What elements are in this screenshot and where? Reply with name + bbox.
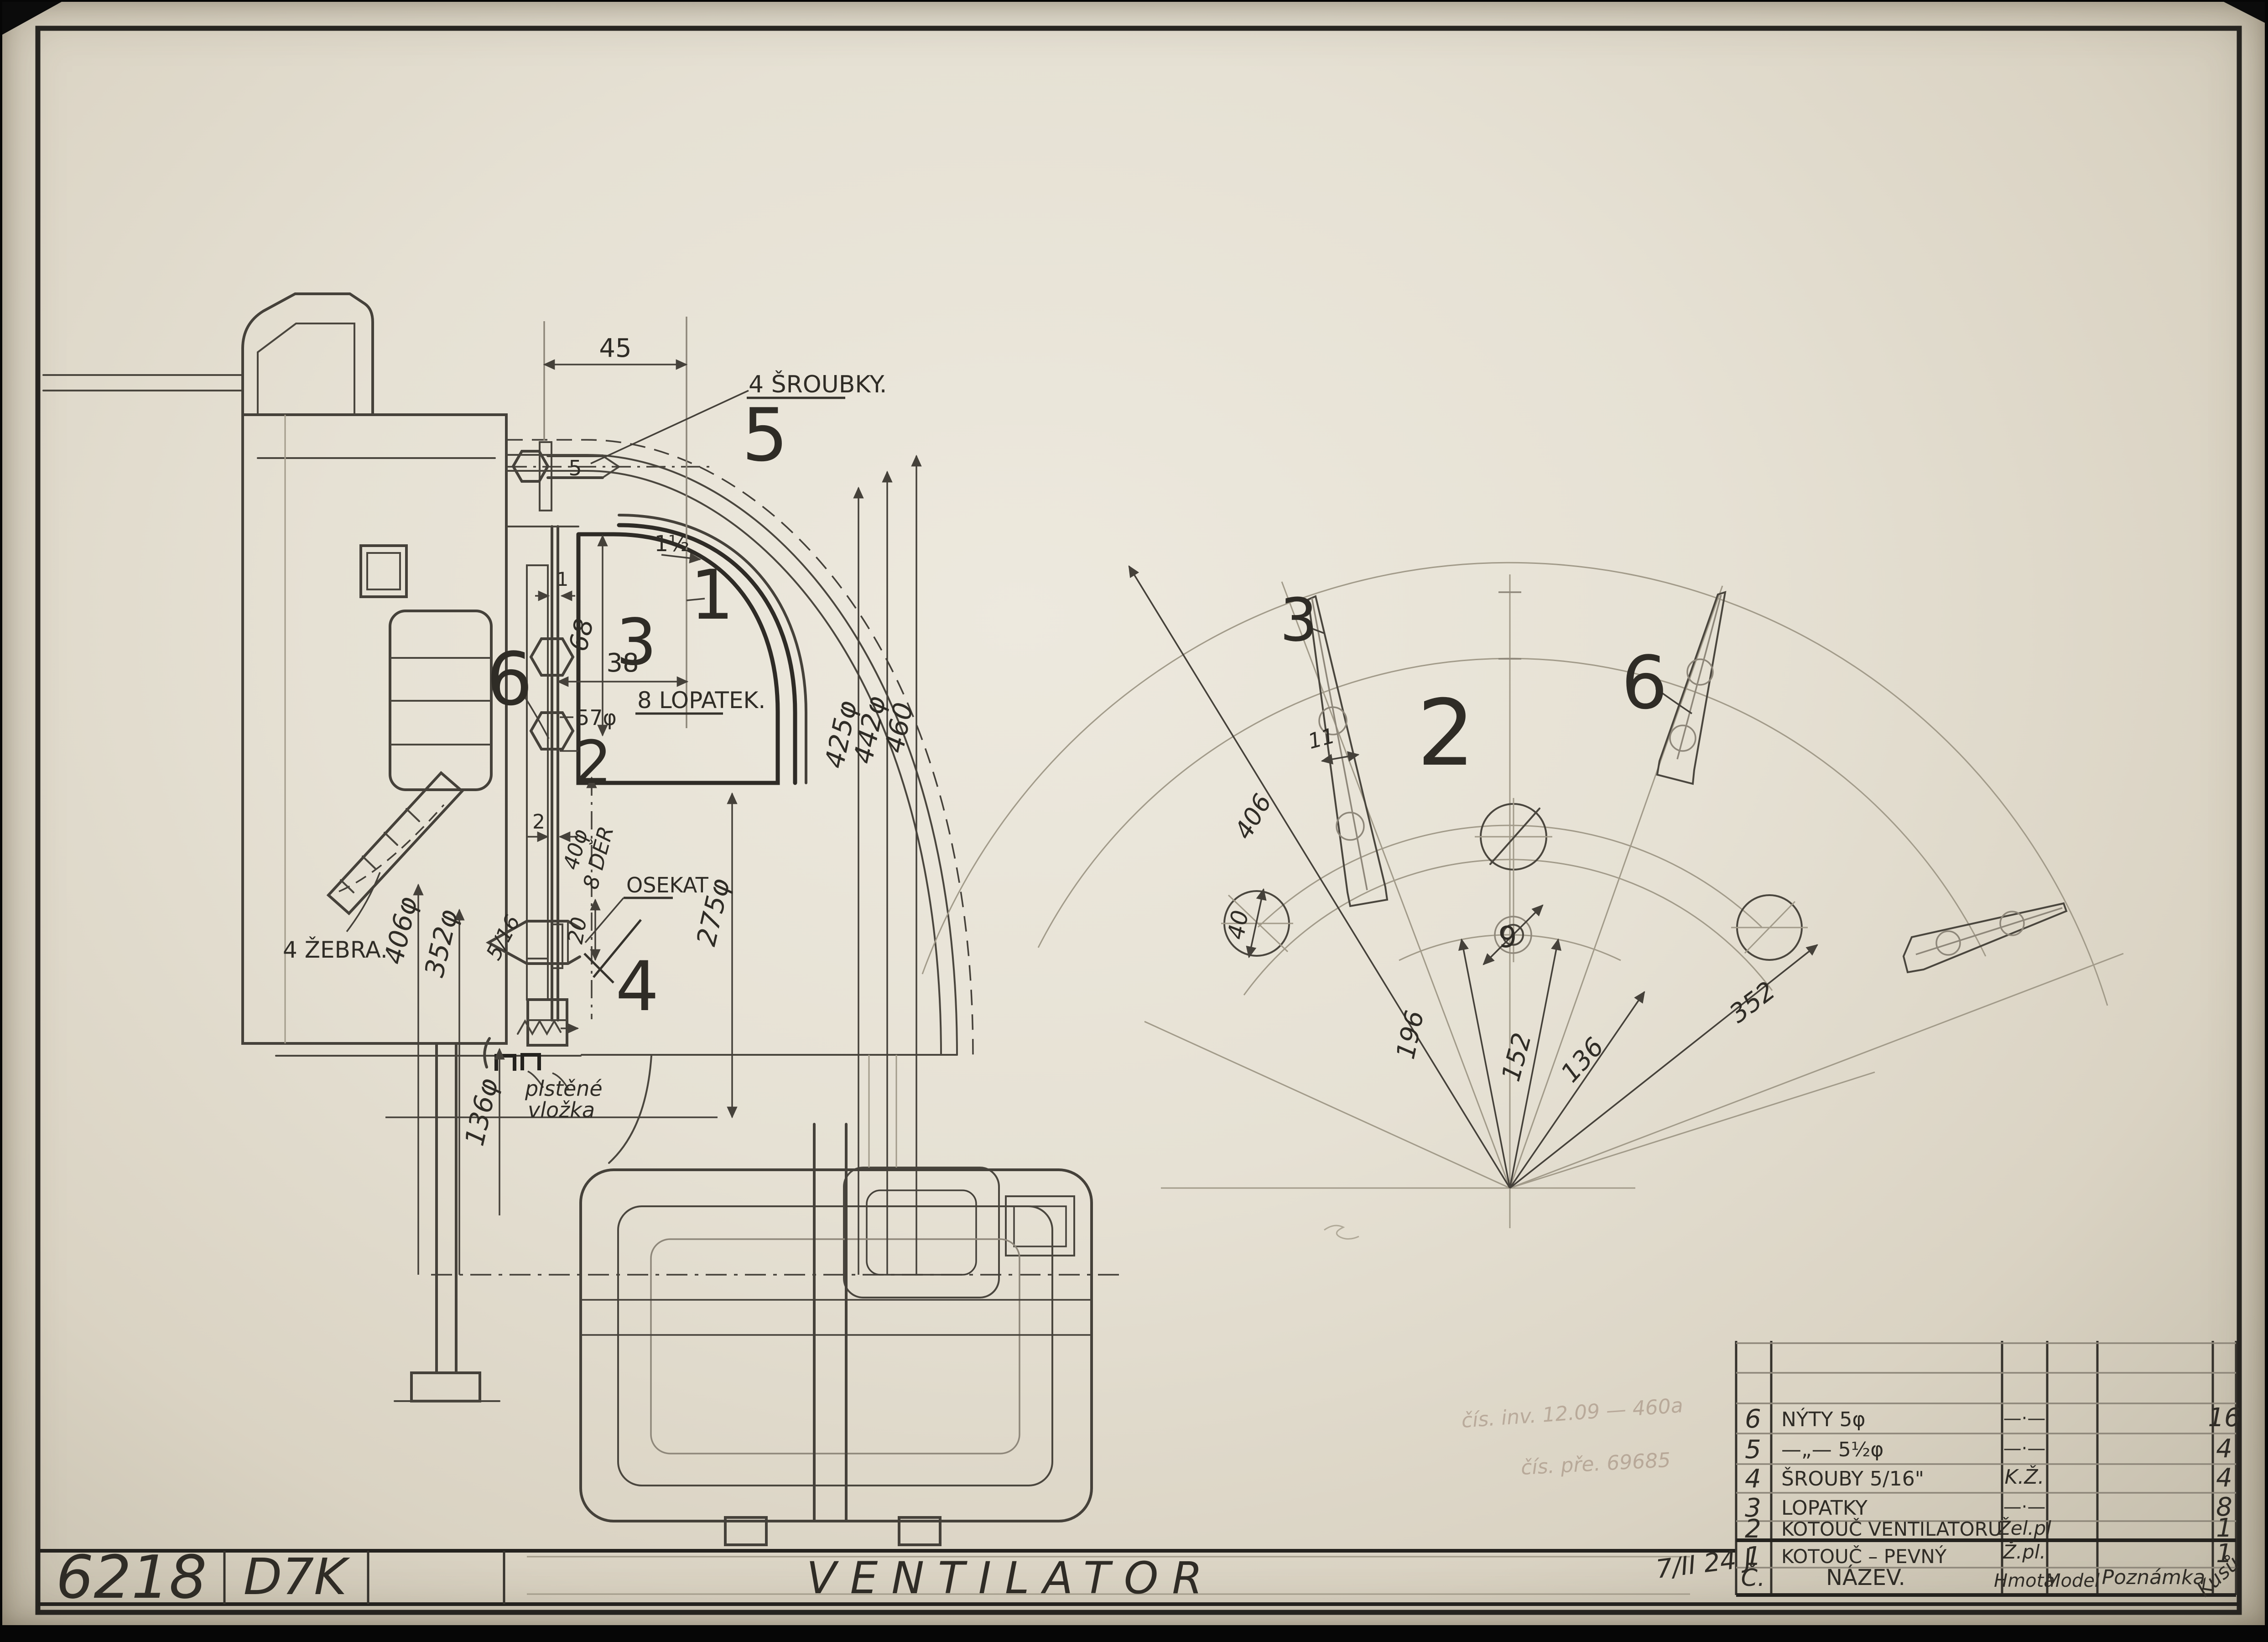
row-material: Žel.pl	[1997, 1517, 2051, 1539]
col-header-name: NÁZEV.	[1826, 1564, 1905, 1590]
balloon-6-face: 6	[1621, 640, 1668, 725]
row-material: K.Ž.	[2005, 1465, 2044, 1489]
row-qty: 16	[2208, 1403, 2240, 1433]
row-qty: 4	[2216, 1434, 2232, 1464]
balloon-6: 6	[486, 636, 533, 722]
felt-note-1: plstěné	[525, 1076, 603, 1101]
photo-corner-top-left	[2, 2, 62, 35]
row-no: 6	[1745, 1404, 1761, 1434]
row-qty: 4	[2216, 1463, 2232, 1493]
balloon-5: 5	[742, 392, 788, 478]
drawing-code: D7K	[244, 1548, 351, 1606]
row-name: NÝTY 5φ	[1781, 1407, 1866, 1431]
osekat-note: OSEKAT	[626, 873, 709, 897]
title-block-texts: 6218 D7K VENTILATOR	[56, 1543, 1217, 1612]
row-name: ŠROUBY 5/16"	[1781, 1466, 1924, 1491]
balloon-3-face: 3	[1280, 585, 1318, 655]
drawing-number: 6218	[56, 1543, 207, 1612]
row-name: LOPATKY	[1781, 1496, 1867, 1520]
parts-table-texts: Č. NÁZEV. Hmota Model Poznámka Kusů 6 NÝ…	[1741, 1403, 2244, 1601]
dim-38: 38	[606, 648, 639, 678]
col-header-note: Poznámka	[2102, 1566, 2206, 1589]
stamp-line-1: čís. inv. 12.09 — 460a	[1461, 1394, 1684, 1433]
row-no: 5	[1745, 1435, 1761, 1465]
drawing-sheet: 45 4 ŠROUBKY. 5 5 1½ 1 3 68 38 8 LOPATEK…	[2, 2, 2265, 1625]
stamp-line-2: čís. pře. 69685	[1520, 1449, 1671, 1480]
row-material: —·—	[2003, 1438, 2046, 1459]
bolt-dia: 5	[568, 456, 582, 480]
balloon-2: 2	[574, 728, 612, 797]
balloon-1: 1	[690, 556, 733, 635]
row-no: 2	[1745, 1514, 1761, 1544]
row-material: Ž.pl.	[2003, 1540, 2046, 1563]
dim-352: 352φ	[419, 907, 464, 980]
dim-1half: 1½	[654, 531, 689, 557]
blueprint-canvas: 45 4 ŠROUBKY. 5 5 1½ 1 3 68 38 8 LOPATEK…	[2, 2, 2268, 1642]
row-name: KOTOUČ VENTILATORU	[1781, 1517, 2002, 1540]
disc-label: 2	[1417, 680, 1475, 787]
dim-11: 11	[1306, 723, 1338, 754]
row-name: KOTOUČ – PEVNÝ	[1781, 1545, 1947, 1568]
blades-note: 8 LOPATEK.	[637, 687, 765, 714]
hole-label-9: 9	[1498, 921, 1517, 954]
disc-view	[922, 563, 2123, 1239]
felt-note-2: vložka	[528, 1098, 595, 1122]
plate-thk: 1	[557, 568, 569, 590]
dim-68: 68	[563, 616, 599, 654]
balloon-4: 4	[615, 947, 659, 1027]
dim-136-face: 136	[1555, 1032, 1610, 1088]
bolt-size-note: 5/16	[481, 911, 525, 964]
photo-corner-top-right	[2224, 2, 2265, 23]
row-no: 4	[1745, 1464, 1761, 1494]
row-qty: 1	[2216, 1539, 2232, 1569]
border-frame	[38, 28, 2239, 1612]
row-no: 1	[1745, 1542, 1761, 1571]
row-name: —„— 5½φ	[1781, 1438, 1883, 1461]
row-material: —·—	[2003, 1408, 2046, 1429]
disc-thk: 2	[532, 810, 545, 834]
dim-136: 136φ	[459, 1075, 505, 1148]
dim-196: 196	[1391, 1008, 1430, 1062]
row-material: —·—	[2003, 1496, 2046, 1517]
dim-352-face: 352	[1724, 976, 1781, 1029]
dim-57: 57φ	[576, 705, 617, 730]
ribs-note: 4 ŽEBRA.	[283, 936, 388, 963]
dim-45: 45	[599, 334, 631, 363]
col-header-model: Model	[2045, 1570, 2100, 1591]
dim-40: 40	[1222, 908, 1254, 942]
dim-406: 406φ	[378, 894, 424, 967]
dim-20: 20	[563, 915, 592, 946]
drawing-title: VENTILATOR	[806, 1553, 1216, 1604]
